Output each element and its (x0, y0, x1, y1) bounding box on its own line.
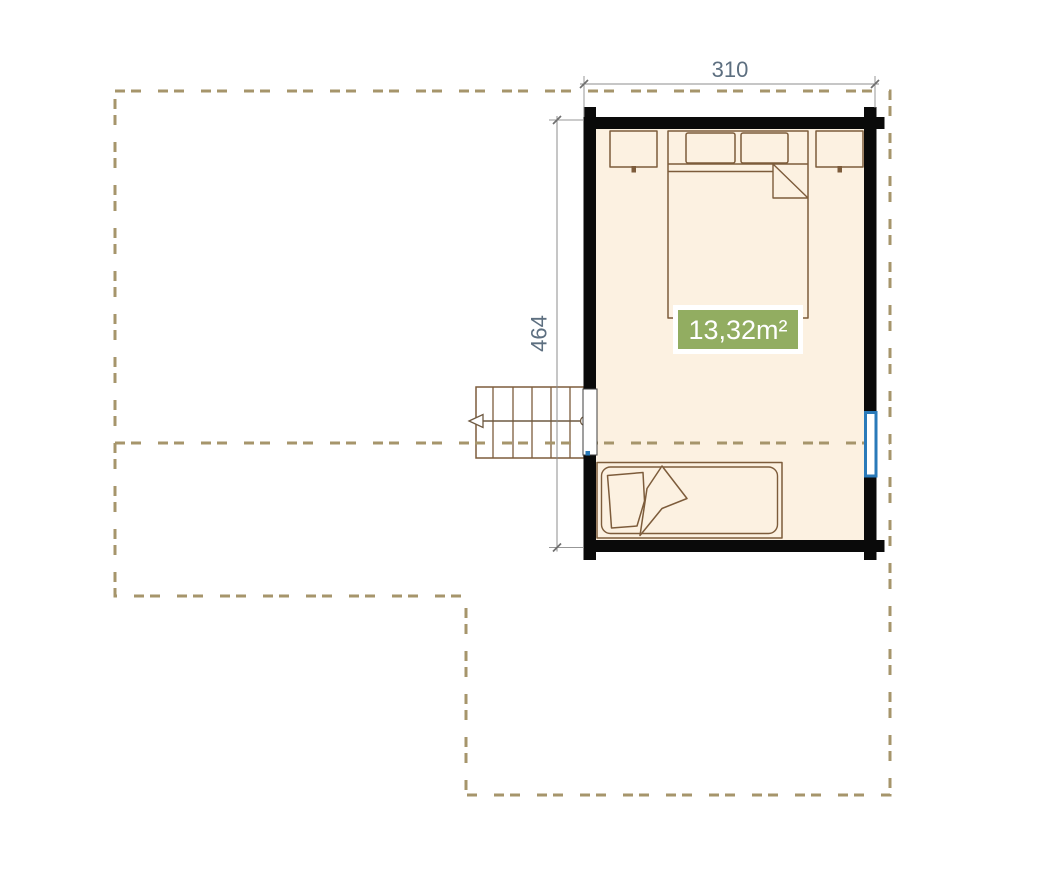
dimension-height-label: 464 (527, 315, 552, 352)
floor-plan-drawing: 310 464 13,32m² (0, 0, 1050, 878)
wall-top (584, 117, 885, 129)
stair-opening (583, 389, 597, 456)
wall-bottom (584, 540, 885, 552)
nightstand-left (610, 131, 657, 167)
double-bed-pillow-left (686, 133, 735, 163)
double-bed-pillow-right (741, 133, 788, 163)
wall-right (864, 107, 877, 560)
dimension-width: 310 (580, 57, 879, 117)
staircase-outline (476, 387, 584, 458)
single-bed-group (597, 463, 782, 539)
window (866, 413, 877, 477)
opening-marker-icon (586, 451, 591, 456)
wall-left (584, 107, 597, 560)
stair-opening-frame (583, 389, 597, 455)
single-bed-pillow (608, 473, 645, 529)
dimension-width-label: 310 (712, 57, 749, 82)
area-badge: 13,32m² (673, 305, 803, 354)
nightstand-left-knob-icon (632, 166, 637, 173)
floor-plan-canvas: 310 464 13,32m² (0, 0, 1050, 878)
staircase (469, 387, 590, 458)
nightstand-right (816, 131, 863, 167)
dimension-height: 464 (527, 116, 585, 552)
nightstand-right-knob-icon (838, 166, 843, 173)
area-badge-label: 13,32m² (688, 315, 787, 345)
